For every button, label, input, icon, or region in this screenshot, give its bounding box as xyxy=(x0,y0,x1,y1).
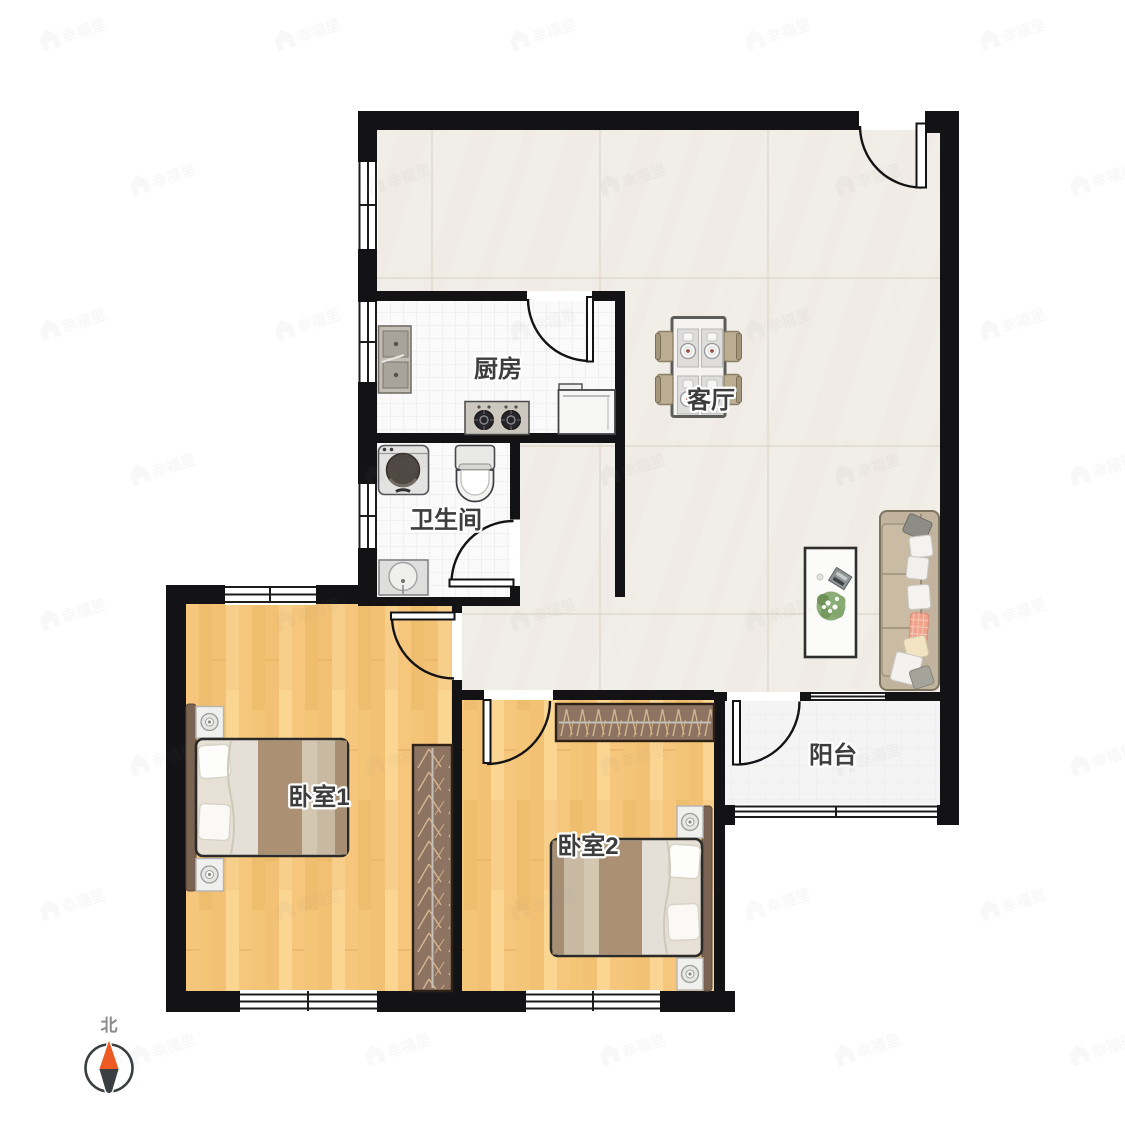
svg-text:卧室2: 卧室2 xyxy=(557,832,618,860)
svg-text:北: 北 xyxy=(101,1016,118,1035)
svg-text:卧室1: 卧室1 xyxy=(288,783,349,811)
svg-text:厨房: 厨房 xyxy=(474,355,522,383)
svg-text:卫生间: 卫生间 xyxy=(410,507,482,534)
svg-text:客厅: 客厅 xyxy=(687,386,735,414)
